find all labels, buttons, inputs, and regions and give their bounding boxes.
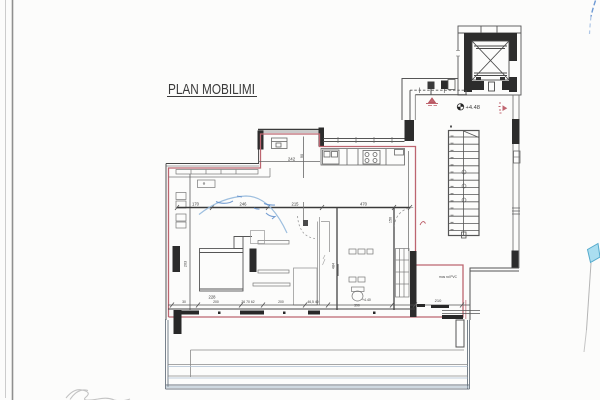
svg-text:46,5 40: 46,5 40 xyxy=(307,300,318,304)
svg-text:200: 200 xyxy=(278,300,284,304)
svg-text:PLAN MOBILIMI: PLAN MOBILIMI xyxy=(168,81,255,98)
svg-text:mos nd PVC: mos nd PVC xyxy=(439,275,458,279)
svg-text:210: 210 xyxy=(435,298,442,303)
svg-text:390: 390 xyxy=(354,304,360,308)
svg-text:484: 484 xyxy=(332,263,336,269)
svg-text:26 70 62: 26 70 62 xyxy=(241,300,254,304)
svg-text:170: 170 xyxy=(192,202,200,207)
svg-text:246: 246 xyxy=(240,202,248,207)
svg-text:30: 30 xyxy=(182,300,186,304)
svg-text:470: 470 xyxy=(360,202,368,207)
svg-text:215: 215 xyxy=(292,202,300,207)
svg-text:+4.40: +4.40 xyxy=(362,298,371,302)
svg-text:90: 90 xyxy=(300,154,304,158)
svg-text:203: 203 xyxy=(184,261,188,267)
svg-text:228: 228 xyxy=(209,295,217,300)
svg-text:+4.48: +4.48 xyxy=(466,105,481,111)
svg-text:200: 200 xyxy=(213,300,219,304)
svg-text:150: 150 xyxy=(389,217,393,223)
svg-text:242: 242 xyxy=(288,157,296,162)
